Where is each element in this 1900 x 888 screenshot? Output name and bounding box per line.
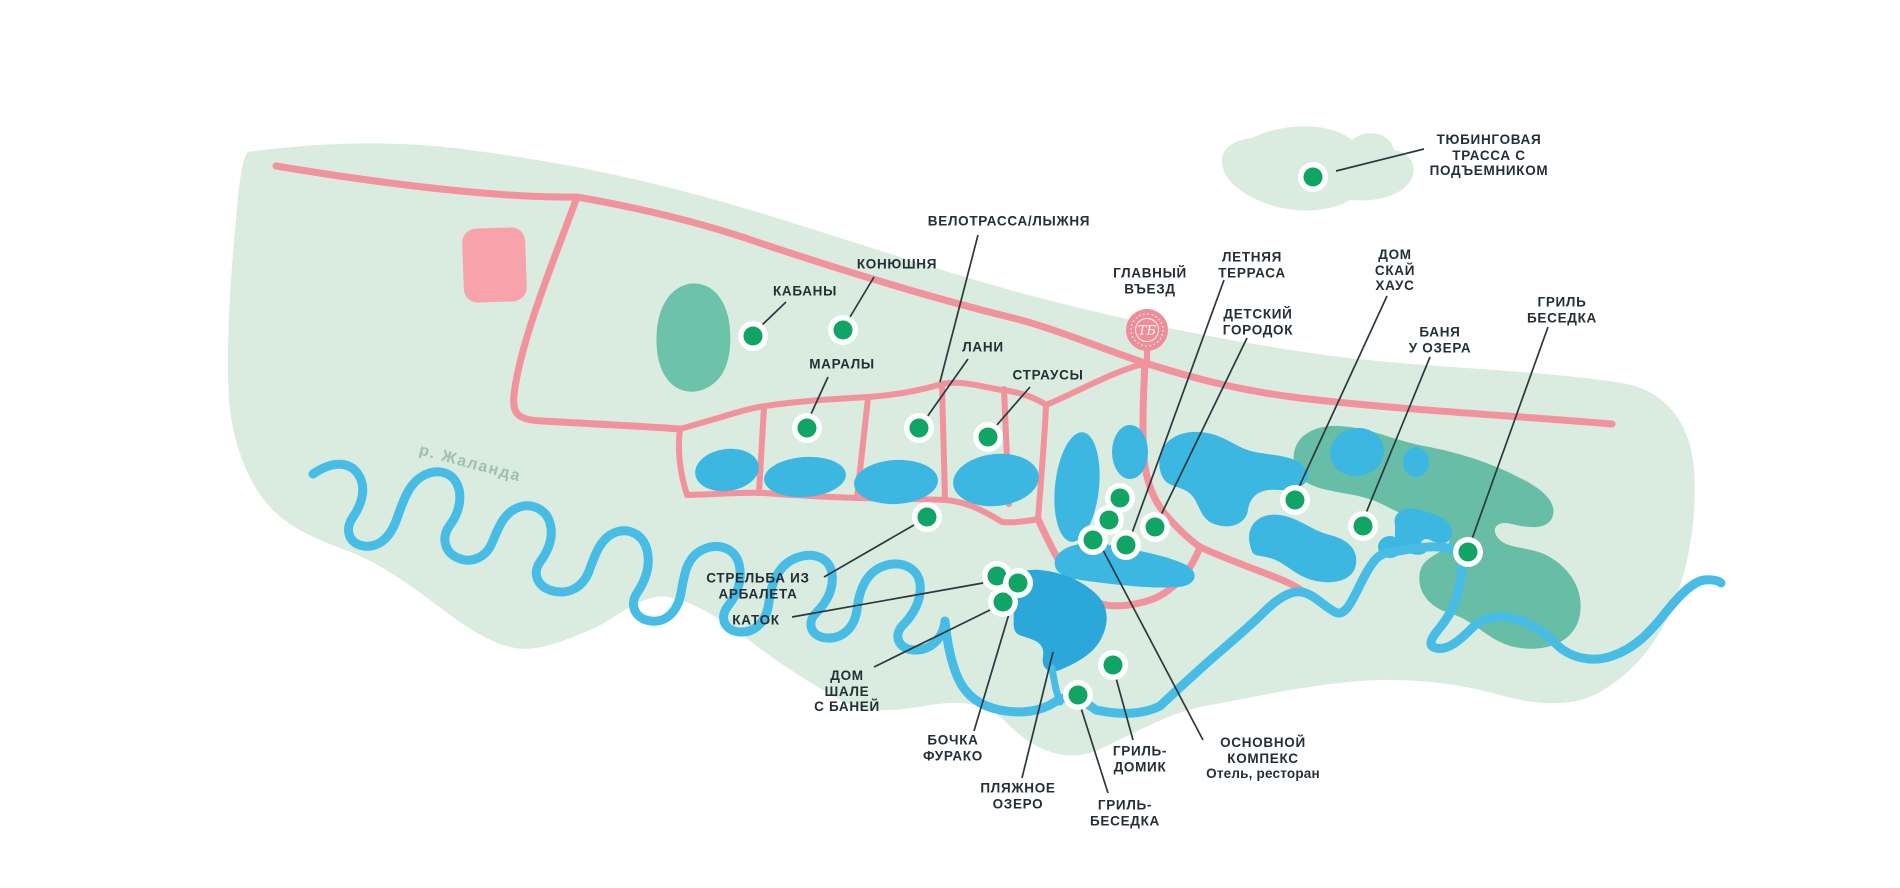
map-graphic: ТБ <box>0 0 1900 888</box>
dom-skay-haus-marker <box>1280 485 1310 515</box>
strausy-marker <box>973 422 1003 452</box>
letnyaya-terrasa-marker <box>1111 530 1141 560</box>
territory-area <box>228 143 1695 755</box>
banya-u-ozera-marker <box>1348 511 1378 541</box>
complex-building-2-marker <box>1094 505 1124 535</box>
detsky-gorodok-marker <box>1140 512 1170 542</box>
resort-map: ТБ р. Жаланда ТЮБИНГОВАЯТРАССА СПОДЪЕМНИ… <box>0 0 1900 888</box>
lani-marker <box>904 413 934 443</box>
building-square <box>462 227 528 303</box>
gril-domik-marker <box>1098 650 1128 680</box>
logo-monogram: ТБ <box>1138 324 1157 339</box>
bochka-furako-marker <box>1003 568 1033 598</box>
gril-besedka-east-marker <box>1453 537 1483 567</box>
maraly-marker <box>792 413 822 443</box>
tubing-track-marker <box>1298 162 1328 192</box>
strelba-iz-arbaleta-marker <box>912 502 942 532</box>
gril-besedka-south-marker <box>1063 680 1093 710</box>
kabany-marker <box>738 321 768 351</box>
forest-west <box>656 283 730 391</box>
konyushnya-marker <box>828 315 858 345</box>
